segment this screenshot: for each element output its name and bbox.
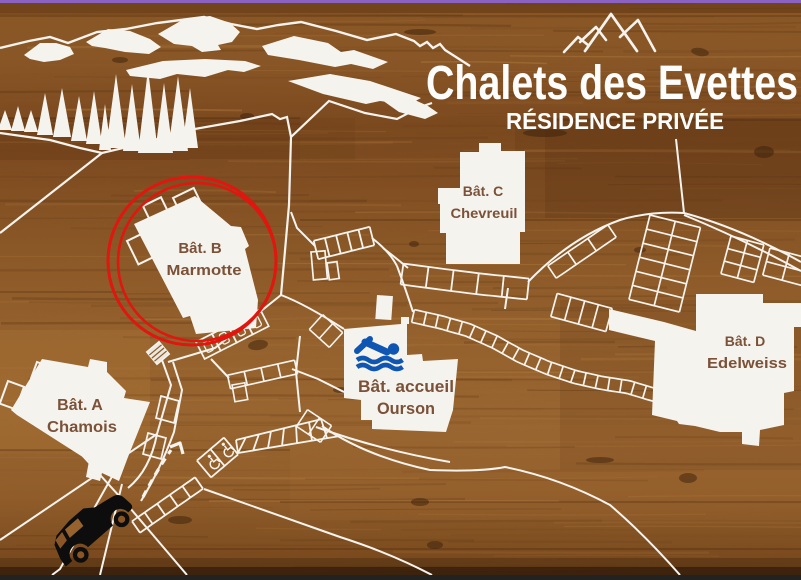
svg-text:Chamois: Chamois	[47, 419, 117, 436]
svg-text:Bât. C: Bât. C	[463, 183, 503, 199]
svg-text:Ourson: Ourson	[377, 399, 435, 418]
svg-text:Bât. accueil: Bât. accueil	[358, 377, 454, 396]
svg-text:Bât. D: Bât. D	[725, 333, 765, 349]
svg-text:RÉSIDENCE PRIVÉE: RÉSIDENCE PRIVÉE	[506, 107, 724, 134]
svg-text:Edelweiss: Edelweiss	[707, 355, 787, 372]
svg-text:Bât. A: Bât. A	[57, 397, 103, 414]
svg-text:Marmotte: Marmotte	[167, 262, 242, 279]
svg-text:Chevreuil: Chevreuil	[451, 205, 518, 221]
svg-text:Bât. B: Bât. B	[178, 240, 222, 257]
svg-text:Chalets des Evettes: Chalets des Evettes	[426, 57, 798, 110]
